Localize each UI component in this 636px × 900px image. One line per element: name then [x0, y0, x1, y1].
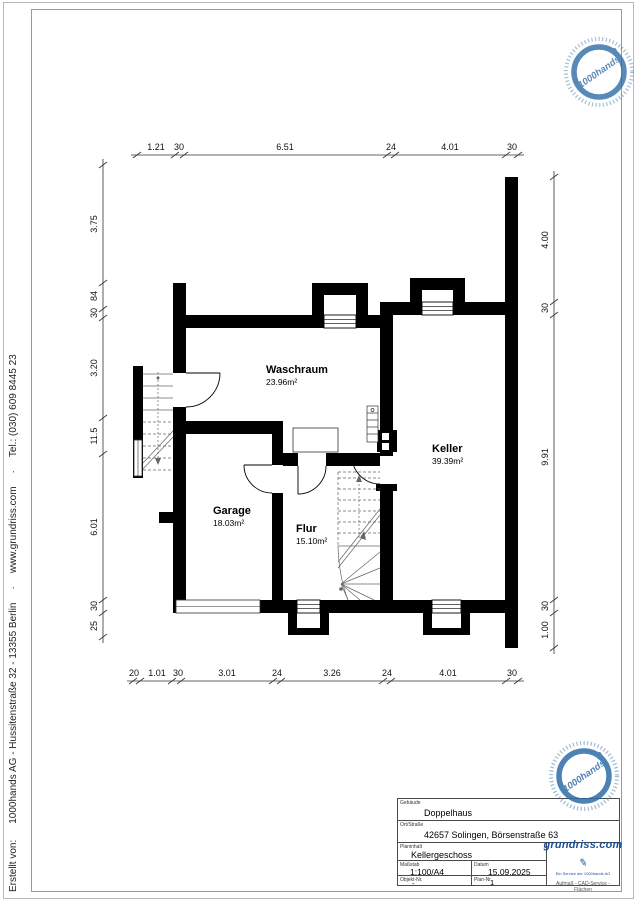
dim-left-6: 6.01	[89, 518, 99, 536]
dimension-chain-right: 4.00 30 9.91 30 1.00	[540, 171, 558, 654]
dim-left-7: 30	[89, 601, 99, 611]
room-area-garage: 18.03m²	[213, 518, 244, 528]
radiator	[367, 406, 378, 442]
titleblock-massstab-cell: Maßstab 1:100/A4	[398, 861, 471, 876]
waschraum-bay-right	[356, 283, 368, 328]
dim-top-2: 30	[174, 142, 184, 152]
waschraum-flur-wall	[283, 453, 298, 466]
dim-bottom-1: 20	[129, 668, 139, 678]
door-swing-garage	[244, 465, 272, 493]
dim-right-5: 1.00	[540, 621, 550, 639]
window-waschraum-bay	[324, 315, 356, 328]
dimension-chain-left: 3.75 84 30 3.20 11.5 6.01 30 25	[89, 159, 107, 643]
north-wall-waschraum	[173, 315, 312, 328]
room-name-waschraum: Waschraum	[266, 364, 328, 376]
dimension-chain-bottom: 20 1.01 30 3.01 24 3.26 24 4.01 30	[127, 668, 524, 684]
building-value: Doppelhaus	[424, 808, 472, 818]
wall-pier	[159, 512, 173, 523]
window-keller-bay	[422, 302, 453, 315]
garage-north-wall	[173, 421, 283, 434]
plan-content-value: Kellergeschoss	[411, 850, 472, 860]
grundriss-logo: grundriss.com	[544, 839, 623, 851]
field-label: Ort/Straße	[400, 822, 423, 828]
dim-left-2: 84	[89, 291, 99, 301]
party-wall	[505, 177, 518, 648]
dim-bottom-4: 3.01	[218, 668, 236, 678]
dim-bottom-3: 30	[173, 668, 183, 678]
titleblock-gebaeude-cell: Gebäude Doppelhaus	[398, 799, 619, 821]
waschraum-fixture	[293, 428, 338, 452]
dim-right-2: 30	[540, 303, 550, 313]
fixtures	[293, 406, 378, 452]
flur-keller-wall	[380, 484, 393, 607]
door-swing-exterior	[186, 373, 220, 407]
dim-left-8: 25	[89, 621, 99, 631]
room-area-keller: 39.39m²	[432, 456, 463, 466]
door-opening	[173, 373, 187, 407]
dim-right-4: 30	[540, 601, 550, 611]
waschraum-keller-wall	[380, 302, 393, 430]
garage-door	[176, 600, 260, 613]
door-swing-waschraum-flur	[298, 466, 326, 494]
stair-direction-arrow	[155, 458, 161, 465]
plan-number-value: 1	[490, 878, 494, 887]
window-stairwell	[134, 440, 142, 476]
west-wall	[173, 283, 186, 613]
logo-subtitle: Ein Service der 1000hands AG	[556, 871, 611, 876]
dim-bottom-6: 3.26	[323, 668, 341, 678]
dim-bottom-7: 24	[382, 668, 392, 678]
dim-left-5: 11.5	[89, 428, 99, 445]
dim-left-4: 3.20	[89, 359, 99, 377]
window-keller-south	[432, 600, 461, 613]
grundriss-logo-cell: grundriss.com✎ Ein Service der 1000hands…	[546, 843, 619, 885]
floorplan-page: { "credit": { "prefix": "Erstellt von:",…	[0, 0, 636, 900]
keller-bay-right	[453, 278, 465, 315]
address-value: 42657 Solingen, Börsenstraße 63	[424, 830, 558, 840]
titleblock-datum-cell: Datum 15.09.2025	[471, 861, 546, 876]
interior-staircase	[338, 472, 380, 600]
dim-top-6: 30	[507, 142, 517, 152]
dim-left-1: 3.75	[89, 215, 99, 233]
dim-top-5: 4.01	[441, 142, 459, 152]
floorplan-drawing: Waschraum 23.96m² Keller 39.39m² Garage …	[0, 0, 636, 900]
keller-lightwell	[423, 628, 470, 635]
dim-top-1: 1.21	[147, 142, 165, 152]
chimney-flue	[382, 433, 389, 440]
dim-bottom-5: 24	[272, 668, 282, 678]
titleblock-objekt-cell: Objekt-Nr. -	[398, 876, 471, 885]
room-name-garage: Garage	[213, 505, 251, 517]
field-label: Datum	[474, 862, 489, 868]
room-name-flur: Flur	[296, 523, 317, 535]
titleblock-plannr-cell: Plan-Nr. 1	[471, 876, 546, 885]
logo-tagline: Aufmaß - CAD-Service - Flächen	[547, 881, 619, 893]
window-flur-south	[297, 600, 320, 613]
flur-lightwell	[288, 628, 329, 635]
dim-right-1: 4.00	[540, 231, 550, 249]
dim-bottom-2: 1.01	[148, 668, 166, 678]
titleblock-planinhalt-cell: Planinhalt Kellergeschoss	[398, 843, 546, 861]
room-area-waschraum: 23.96m²	[266, 377, 297, 387]
dim-bottom-9: 30	[507, 668, 517, 678]
titleblock: Gebäude Doppelhaus Ort/Straße 42657 Soli…	[397, 798, 620, 886]
room-area-flur: 15.10m²	[296, 536, 327, 546]
exterior-staircase	[143, 372, 173, 470]
dim-top-4: 24	[386, 142, 396, 152]
pen-icon: ✎	[578, 857, 588, 869]
field-label: Gebäude	[400, 800, 421, 806]
dim-left-3: 30	[89, 308, 99, 318]
room-name-keller: Keller	[432, 443, 463, 455]
garage-flur-wall	[272, 421, 283, 465]
chimney-flue	[382, 443, 389, 450]
object-number-value: -	[412, 879, 415, 888]
dim-top-3: 6.51	[276, 142, 294, 152]
dim-right-3: 9.91	[540, 448, 550, 466]
dim-bottom-8: 4.01	[439, 668, 457, 678]
walls	[133, 177, 518, 648]
dimension-chain-top: 1.21 30 6.51 24 4.01 30	[131, 142, 524, 158]
